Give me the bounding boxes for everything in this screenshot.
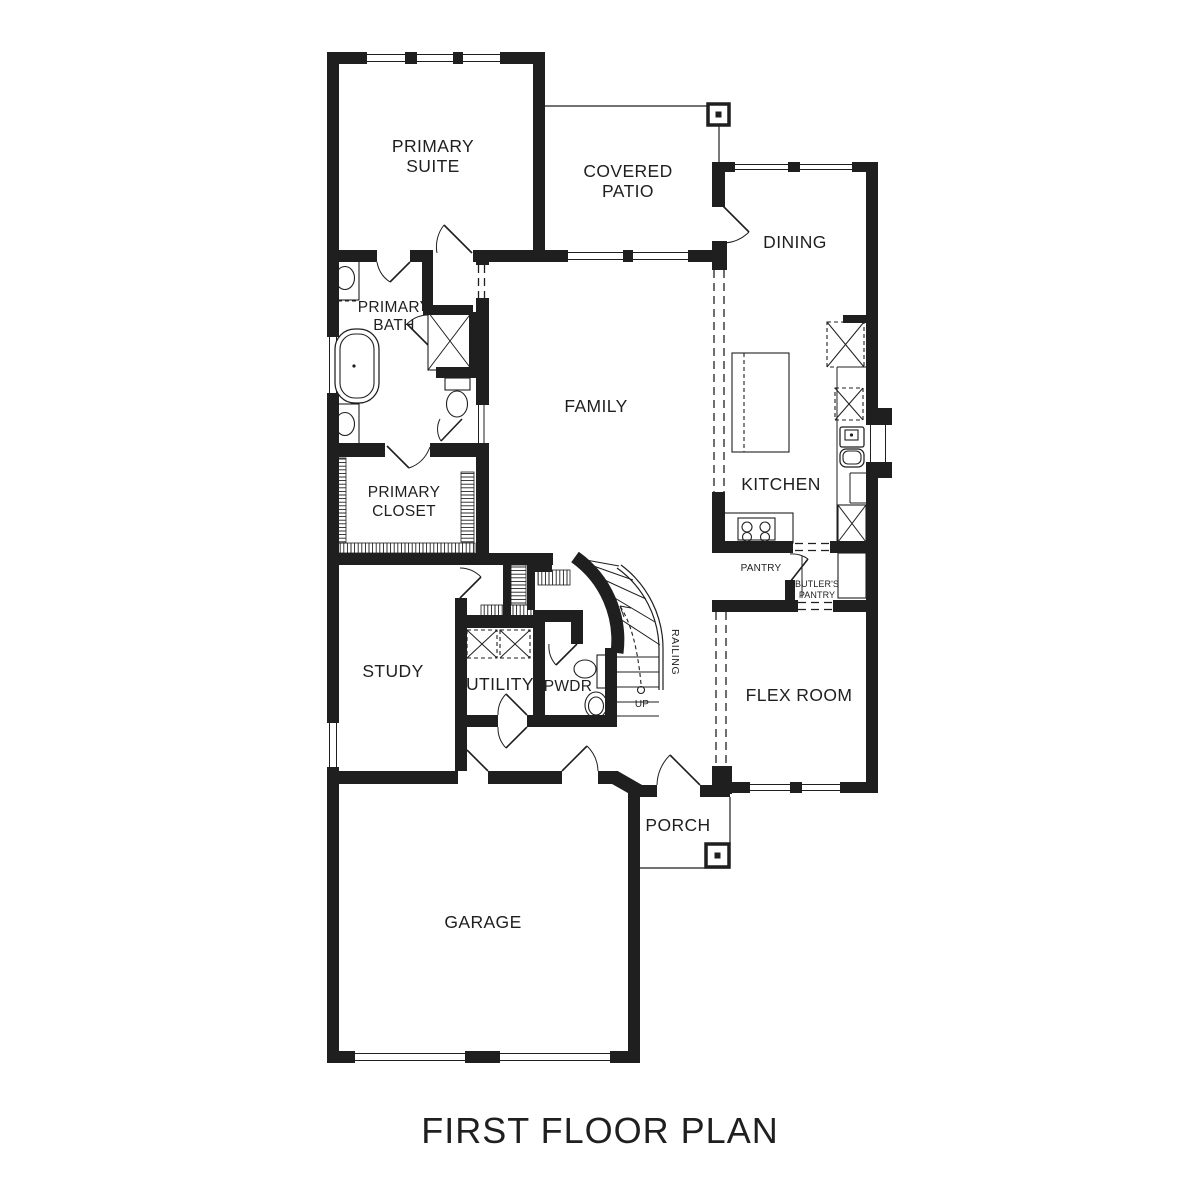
cooktop: [723, 513, 793, 543]
room-label-covered-patio: COVEREDPATIO: [583, 161, 672, 201]
toilet-powder: [585, 692, 607, 718]
floor-plan-drawing: RAILING UP PRIMARYSUITE COVEREDPATIO DIN…: [0, 0, 1200, 1200]
room-label-pantry: PANTRY: [741, 563, 782, 574]
toilet-primary: [445, 378, 470, 417]
room-label-primary-closet: PRIMARYCLOSET: [368, 484, 440, 520]
railing-label: RAILING: [669, 629, 681, 675]
kitchen-sink: [840, 427, 864, 467]
room-label-family: FAMILY: [564, 396, 627, 416]
room-label-garage: GARAGE: [444, 912, 521, 932]
floor-plan-page: RAILING UP PRIMARYSUITE COVEREDPATIO DIN…: [0, 0, 1200, 1200]
room-label-flex-room: FLEX ROOM: [746, 685, 853, 705]
kitchen-island: [732, 353, 789, 452]
patio-column: [708, 104, 729, 125]
up-label: UP: [635, 699, 649, 710]
bathtub: [335, 329, 379, 403]
room-label-porch: PORCH: [645, 815, 710, 835]
room-label-primary-suite: PRIMARYSUITE: [392, 136, 474, 176]
porch-column: [706, 844, 729, 867]
room-label-study: STUDY: [362, 661, 423, 681]
room-label-kitchen: KITCHEN: [741, 474, 821, 494]
covered-patio-outline: [545, 106, 719, 163]
walls: [327, 52, 892, 1063]
washer-dryer: [467, 630, 530, 658]
shower: [428, 312, 472, 370]
room-label-butlers-pantry: BUTLER'SPANTRY: [795, 579, 839, 600]
room-label-dining: DINING: [763, 232, 827, 252]
page-title: FIRST FLOOR PLAN: [421, 1110, 778, 1151]
room-label-powder: PWDR: [544, 678, 593, 695]
room-label-utility: UTILITY: [466, 674, 534, 694]
